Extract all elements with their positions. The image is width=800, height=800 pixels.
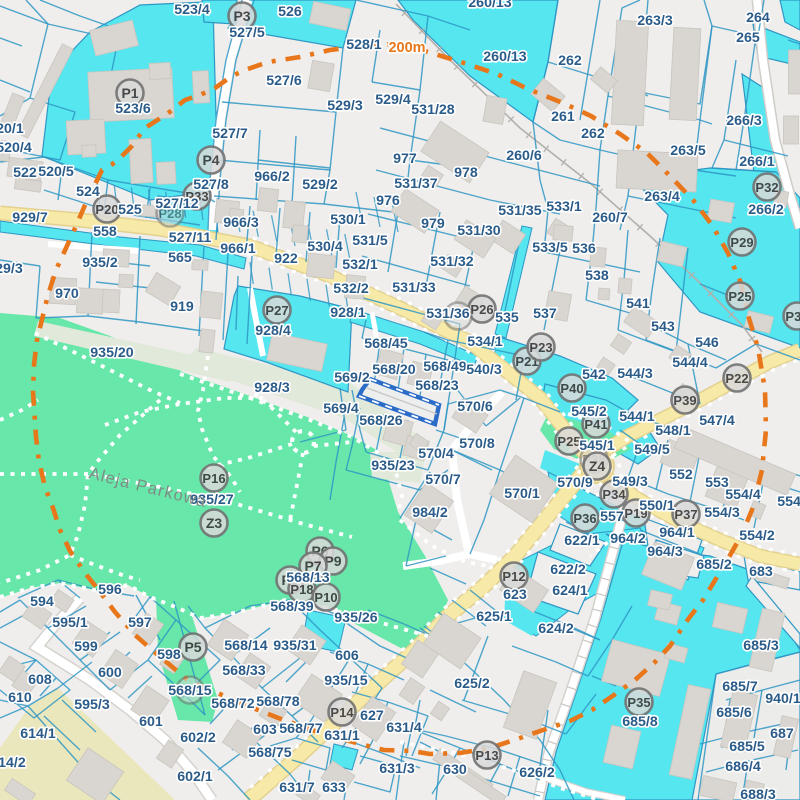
svg-text:522: 522 xyxy=(13,165,37,181)
svg-text:568/15: 568/15 xyxy=(168,683,212,699)
svg-text:610: 610 xyxy=(8,690,32,706)
svg-text:520/1: 520/1 xyxy=(0,121,24,137)
svg-text:531/33: 531/33 xyxy=(392,280,436,296)
svg-text:568/77: 568/77 xyxy=(279,721,323,737)
svg-text:527/11: 527/11 xyxy=(169,230,212,246)
svg-text:P29: P29 xyxy=(730,235,753,250)
svg-text:P13: P13 xyxy=(475,748,498,763)
svg-text:570/1: 570/1 xyxy=(504,486,540,502)
svg-text:266/3: 266/3 xyxy=(726,113,762,129)
svg-text:P1: P1 xyxy=(121,85,138,101)
svg-text:633: 633 xyxy=(322,780,346,796)
svg-text:964/2: 964/2 xyxy=(610,531,646,547)
svg-text:928/1: 928/1 xyxy=(330,305,366,321)
svg-text:P23: P23 xyxy=(529,340,552,355)
svg-text:P39: P39 xyxy=(673,393,696,408)
svg-text:922: 922 xyxy=(274,251,298,267)
svg-text:524: 524 xyxy=(76,184,100,200)
svg-text:P35: P35 xyxy=(627,695,650,710)
svg-text:568/13: 568/13 xyxy=(286,570,330,586)
svg-text:568/72: 568/72 xyxy=(211,696,255,712)
svg-text:260/13: 260/13 xyxy=(483,49,527,65)
svg-text:687: 687 xyxy=(770,726,794,742)
svg-text:614/2: 614/2 xyxy=(0,755,26,771)
svg-text:929/3: 929/3 xyxy=(0,261,23,277)
svg-text:532/1: 532/1 xyxy=(342,257,378,273)
svg-text:570/7: 570/7 xyxy=(425,472,461,488)
svg-text:531/36: 531/36 xyxy=(426,306,470,322)
svg-text:P14: P14 xyxy=(330,705,354,720)
svg-text:625/1: 625/1 xyxy=(476,609,512,625)
svg-text:531/30: 531/30 xyxy=(457,223,501,239)
svg-text:529/3: 529/3 xyxy=(327,98,363,114)
svg-text:P12: P12 xyxy=(502,569,525,584)
svg-text:520/4: 520/4 xyxy=(0,140,32,156)
svg-text:608: 608 xyxy=(28,672,52,688)
svg-text:P20: P20 xyxy=(95,202,118,217)
svg-text:P26: P26 xyxy=(470,302,493,317)
svg-text:598: 598 xyxy=(157,647,181,663)
svg-text:685/6: 685/6 xyxy=(716,705,752,721)
svg-text:529/4: 529/4 xyxy=(375,92,411,108)
svg-text:549/5: 549/5 xyxy=(634,442,670,458)
svg-text:554/3: 554/3 xyxy=(704,505,740,521)
svg-text:597: 597 xyxy=(128,615,152,631)
svg-text:544/4: 544/4 xyxy=(672,355,708,371)
svg-text:606: 606 xyxy=(335,648,359,664)
svg-text:530/1: 530/1 xyxy=(330,212,366,228)
svg-text:558: 558 xyxy=(93,224,117,240)
svg-text:602/1: 602/1 xyxy=(177,769,213,785)
svg-text:527/6: 527/6 xyxy=(266,73,302,89)
svg-text:554/4: 554/4 xyxy=(725,487,761,503)
svg-text:545/1: 545/1 xyxy=(579,438,615,454)
svg-text:614/1: 614/1 xyxy=(20,726,56,742)
svg-text:P36: P36 xyxy=(573,511,596,526)
svg-text:542: 542 xyxy=(582,367,606,383)
svg-text:544/1: 544/1 xyxy=(619,409,655,425)
svg-text:685/2: 685/2 xyxy=(696,557,732,573)
svg-text:570/8: 570/8 xyxy=(459,436,495,452)
svg-text:540/3: 540/3 xyxy=(466,362,502,378)
svg-text:541: 541 xyxy=(626,296,650,312)
svg-text:529/2: 529/2 xyxy=(302,177,338,193)
svg-text:554/2: 554/2 xyxy=(739,528,775,544)
svg-text:526: 526 xyxy=(278,4,302,20)
svg-text:527/7: 527/7 xyxy=(212,126,248,142)
svg-text:940/1: 940/1 xyxy=(765,691,800,707)
svg-text:P3: P3 xyxy=(233,8,250,24)
svg-text:550/1: 550/1 xyxy=(639,498,675,514)
svg-text:P4: P4 xyxy=(202,152,219,168)
svg-text:262: 262 xyxy=(581,126,605,142)
svg-text:935/23: 935/23 xyxy=(371,458,415,474)
svg-text:568/49: 568/49 xyxy=(423,359,467,375)
svg-text:260/7: 260/7 xyxy=(592,210,628,226)
svg-text:935/20: 935/20 xyxy=(90,345,134,361)
svg-text:568/39: 568/39 xyxy=(270,599,314,615)
svg-text:536: 536 xyxy=(572,241,596,257)
svg-text:685/7: 685/7 xyxy=(722,679,758,695)
svg-text:568/26: 568/26 xyxy=(359,413,403,429)
svg-text:964/1: 964/1 xyxy=(659,525,695,541)
svg-text:688/3: 688/3 xyxy=(740,787,776,800)
svg-text:565: 565 xyxy=(168,250,192,266)
svg-text:928/3: 928/3 xyxy=(254,380,290,396)
svg-text:568/45: 568/45 xyxy=(364,336,408,352)
svg-text:557: 557 xyxy=(600,509,624,525)
svg-text:546: 546 xyxy=(695,335,719,351)
svg-text:976: 976 xyxy=(376,193,400,209)
svg-text:979: 979 xyxy=(421,216,445,232)
svg-text:602/2: 602/2 xyxy=(180,730,216,746)
svg-text:569/4: 569/4 xyxy=(323,401,359,417)
svg-text:594: 594 xyxy=(30,594,54,610)
svg-text:P25: P25 xyxy=(728,289,751,304)
svg-text:260/6: 260/6 xyxy=(506,148,542,164)
svg-text:P22: P22 xyxy=(725,371,748,386)
svg-text:919: 919 xyxy=(170,299,194,315)
svg-text:527/12: 527/12 xyxy=(155,196,199,212)
svg-text:935/26: 935/26 xyxy=(334,610,378,626)
svg-text:568/33: 568/33 xyxy=(222,663,266,679)
svg-text:260/13: 260/13 xyxy=(468,0,512,11)
svg-text:532/2: 532/2 xyxy=(333,281,369,297)
svg-text:263/4: 263/4 xyxy=(644,189,680,205)
svg-text:523/6: 523/6 xyxy=(115,101,151,117)
svg-text:528/1: 528/1 xyxy=(346,37,382,53)
svg-text:600: 600 xyxy=(98,665,122,681)
svg-text:966/2: 966/2 xyxy=(254,169,290,185)
svg-text:P32: P32 xyxy=(755,180,778,195)
svg-text:523/4: 523/4 xyxy=(174,2,210,18)
svg-text:531/28: 531/28 xyxy=(411,102,455,118)
svg-text:626/2: 626/2 xyxy=(519,765,555,781)
svg-text:531/5: 531/5 xyxy=(352,233,388,249)
svg-text:543: 543 xyxy=(651,319,675,335)
svg-text:928/4: 928/4 xyxy=(255,323,291,339)
svg-text:977: 977 xyxy=(393,151,417,167)
svg-text:624/2: 624/2 xyxy=(538,621,574,637)
svg-text:525: 525 xyxy=(118,202,142,218)
svg-text:534/1: 534/1 xyxy=(467,334,503,350)
svg-text:599: 599 xyxy=(74,639,98,655)
svg-text:263/5: 263/5 xyxy=(670,143,706,159)
svg-text:570/6: 570/6 xyxy=(457,399,493,415)
svg-text:964/3: 964/3 xyxy=(647,544,683,560)
svg-text:549/3: 549/3 xyxy=(612,474,648,490)
svg-text:570/9: 570/9 xyxy=(557,475,593,491)
svg-text:978: 978 xyxy=(454,165,478,181)
svg-text:623: 623 xyxy=(503,587,527,603)
svg-text:264: 264 xyxy=(746,10,770,26)
svg-text:P10: P10 xyxy=(314,590,337,605)
svg-text:538: 538 xyxy=(585,268,609,284)
svg-text:683: 683 xyxy=(749,564,773,580)
svg-text:262: 262 xyxy=(558,53,582,69)
svg-text:631/4: 631/4 xyxy=(386,720,422,736)
svg-text:625/2: 625/2 xyxy=(454,676,490,692)
svg-text:533/1: 533/1 xyxy=(546,199,582,215)
svg-text:595/3: 595/3 xyxy=(74,697,110,713)
svg-text:622/2: 622/2 xyxy=(550,562,586,578)
svg-text:P25: P25 xyxy=(557,434,580,449)
svg-text:P16: P16 xyxy=(202,471,225,486)
svg-text:630: 630 xyxy=(443,762,467,778)
svg-text:568/78: 568/78 xyxy=(256,694,300,710)
svg-text:533/5: 533/5 xyxy=(532,240,568,256)
svg-text:544/3: 544/3 xyxy=(617,366,653,382)
svg-text:530/4: 530/4 xyxy=(307,239,343,255)
svg-text:935/15: 935/15 xyxy=(324,673,368,689)
svg-text:537: 537 xyxy=(533,306,557,322)
svg-text:929/7: 929/7 xyxy=(12,210,48,226)
svg-text:631/7: 631/7 xyxy=(279,780,315,796)
svg-text:266/2: 266/2 xyxy=(748,202,784,218)
svg-text:685/8: 685/8 xyxy=(622,714,658,730)
svg-text:520/5: 520/5 xyxy=(38,164,74,180)
svg-text:531/32: 531/32 xyxy=(430,254,474,270)
svg-text:531/35: 531/35 xyxy=(498,203,542,219)
svg-text:601: 601 xyxy=(139,714,163,730)
svg-text:966/1: 966/1 xyxy=(220,241,256,257)
svg-text:966/3: 966/3 xyxy=(223,215,259,231)
svg-text:266/1: 266/1 xyxy=(739,154,775,170)
svg-text:685/5: 685/5 xyxy=(729,739,765,755)
svg-text:596: 596 xyxy=(98,582,122,598)
svg-text:552: 552 xyxy=(669,467,693,483)
svg-text:P40: P40 xyxy=(560,381,583,396)
svg-text:631/1: 631/1 xyxy=(324,728,360,744)
svg-text:970: 970 xyxy=(55,286,79,302)
svg-text:595/1: 595/1 xyxy=(52,615,88,631)
svg-text:568/14: 568/14 xyxy=(224,638,268,654)
svg-text:265: 265 xyxy=(736,30,760,46)
svg-text:568/20: 568/20 xyxy=(372,362,416,378)
svg-text:531/37: 531/37 xyxy=(394,176,438,192)
svg-text:554/1: 554/1 xyxy=(777,494,800,510)
svg-text:200m: 200m xyxy=(388,40,425,56)
svg-text:535: 535 xyxy=(495,310,519,326)
svg-text:527/8: 527/8 xyxy=(193,177,229,193)
svg-text:P27: P27 xyxy=(265,303,288,318)
svg-text:935/31: 935/31 xyxy=(273,638,317,654)
svg-text:263/3: 263/3 xyxy=(637,13,673,29)
svg-text:935/2: 935/2 xyxy=(82,255,118,271)
svg-text:Z4: Z4 xyxy=(589,458,606,474)
svg-text:261: 261 xyxy=(551,109,575,125)
svg-text:548/1: 548/1 xyxy=(655,423,691,439)
svg-text:686/4: 686/4 xyxy=(725,759,761,775)
svg-text:568/75: 568/75 xyxy=(248,745,292,761)
svg-text:527/5: 527/5 xyxy=(229,25,265,41)
svg-text:545/2: 545/2 xyxy=(571,404,607,420)
svg-text:624/1: 624/1 xyxy=(552,583,588,599)
svg-text:631/3: 631/3 xyxy=(379,761,415,777)
svg-text:P30: P30 xyxy=(785,309,800,324)
svg-text:547/4: 547/4 xyxy=(699,413,735,429)
svg-text:570/4: 570/4 xyxy=(418,446,454,462)
svg-text:569/2: 569/2 xyxy=(334,370,370,386)
svg-text:P37: P37 xyxy=(674,507,697,522)
svg-text:685/3: 685/3 xyxy=(743,638,779,654)
svg-text:622/1: 622/1 xyxy=(564,533,600,549)
svg-text:568/23: 568/23 xyxy=(415,378,459,394)
svg-text:984/2: 984/2 xyxy=(412,505,448,521)
svg-text:P5: P5 xyxy=(184,639,201,655)
svg-text:Z3: Z3 xyxy=(206,515,223,531)
svg-text:603: 603 xyxy=(253,722,277,738)
svg-text:627: 627 xyxy=(360,708,384,724)
